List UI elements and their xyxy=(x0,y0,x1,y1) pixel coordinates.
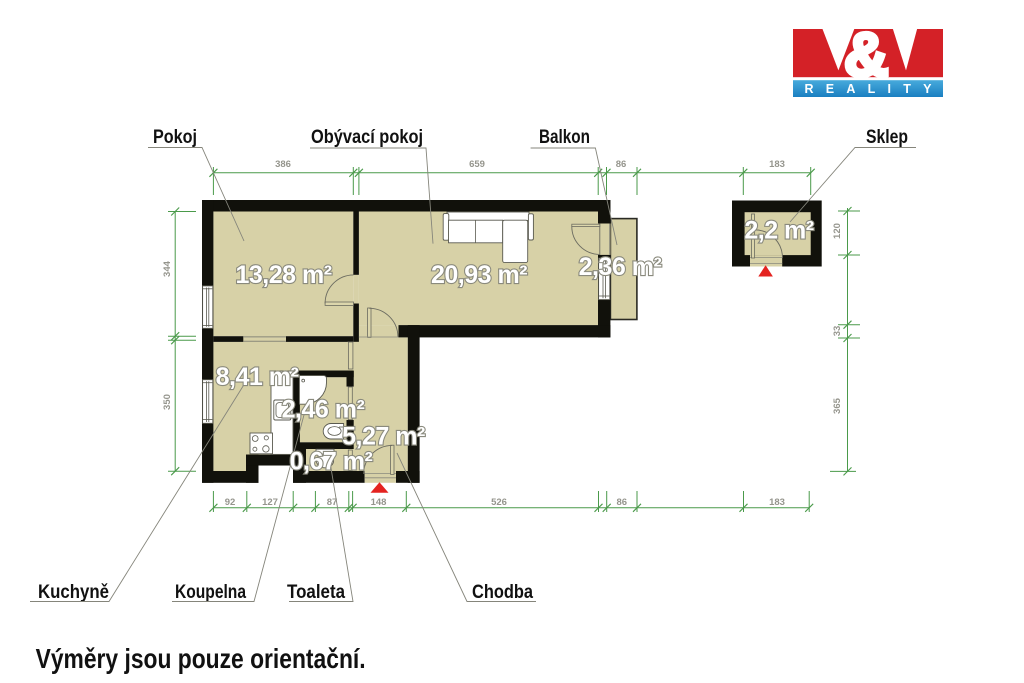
svg-text:Obývací pokoj: Obývací pokoj xyxy=(311,127,423,148)
svg-text:Sklep: Sklep xyxy=(866,127,908,148)
svg-text:8,41 m²: 8,41 m² xyxy=(216,363,299,391)
svg-text:Výměry jsou pouze orientační.: Výměry jsou pouze orientační. xyxy=(36,643,366,674)
svg-text:5,27 m²: 5,27 m² xyxy=(342,423,425,451)
svg-text:386: 386 xyxy=(275,159,291,170)
svg-text:20,93 m²: 20,93 m² xyxy=(431,261,527,289)
svg-text:Chodba: Chodba xyxy=(472,582,533,603)
svg-text:2,36 m²: 2,36 m² xyxy=(579,253,662,281)
svg-text:2,2 m²: 2,2 m² xyxy=(744,217,813,245)
svg-text:86: 86 xyxy=(617,497,628,508)
svg-text:Toaleta: Toaleta xyxy=(287,582,345,603)
svg-text:183: 183 xyxy=(769,159,785,170)
svg-text:33: 33 xyxy=(832,326,843,337)
svg-text:13,28 m²: 13,28 m² xyxy=(235,261,331,289)
svg-text:148: 148 xyxy=(371,497,387,508)
svg-text:Kuchyně: Kuchyně xyxy=(38,582,109,603)
svg-text:Pokoj: Pokoj xyxy=(153,127,197,148)
svg-text:365: 365 xyxy=(832,397,843,414)
svg-text:183: 183 xyxy=(769,497,785,508)
svg-text:92: 92 xyxy=(225,497,236,508)
svg-text:Koupelna: Koupelna xyxy=(175,582,246,603)
svg-text:&: & xyxy=(844,21,889,90)
svg-text:659: 659 xyxy=(469,159,485,170)
svg-text:2,46 m²: 2,46 m² xyxy=(282,396,365,424)
svg-text:526: 526 xyxy=(491,497,507,508)
svg-text:120: 120 xyxy=(832,223,843,239)
svg-text:86: 86 xyxy=(616,159,627,170)
svg-text:Balkon: Balkon xyxy=(539,127,590,148)
svg-text:127: 127 xyxy=(262,497,278,508)
svg-text:0,67 m²: 0,67 m² xyxy=(290,448,373,476)
svg-text:344: 344 xyxy=(162,260,173,277)
svg-text:350: 350 xyxy=(162,394,173,410)
